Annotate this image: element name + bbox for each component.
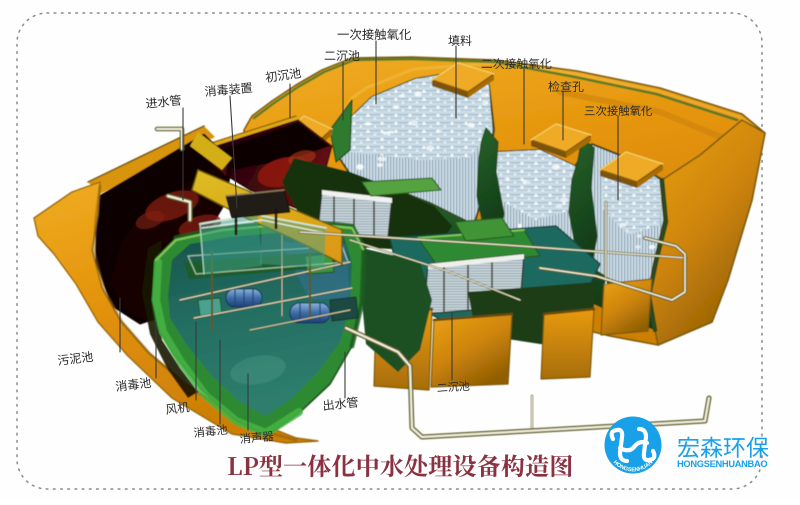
svg-text:HONGSENHUANBAO: HONGSENHUANBAO bbox=[677, 459, 767, 469]
